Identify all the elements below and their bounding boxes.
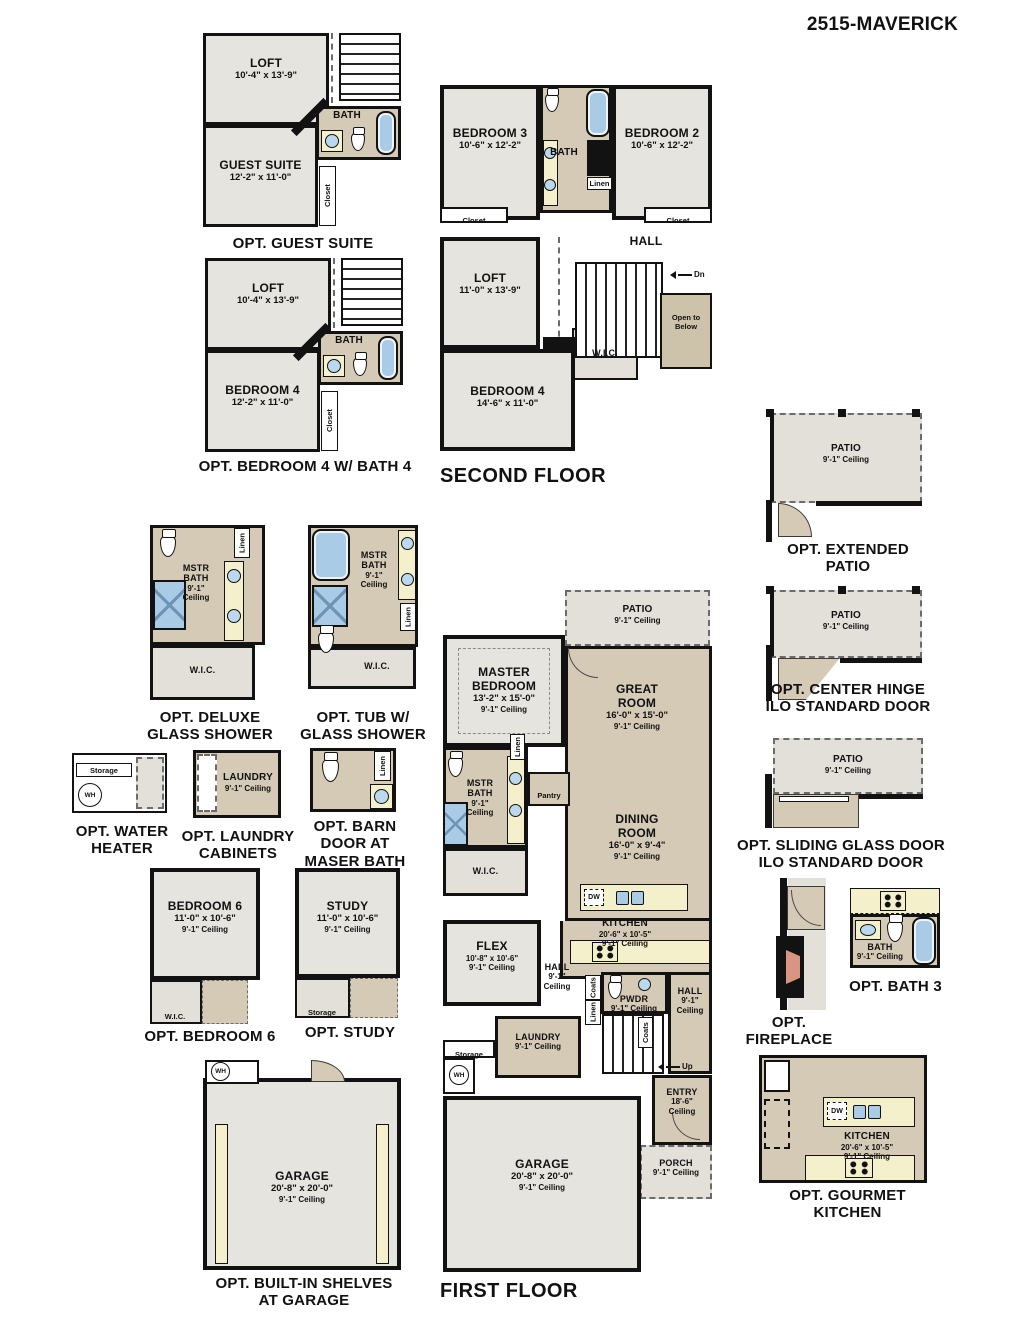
- plan-opt-fireplace: OPT.FIREPLACE: [748, 878, 830, 1048]
- laundry-label: LAUNDRY9'-1" Ceiling: [495, 1032, 581, 1052]
- hall-label: HALL: [615, 235, 677, 249]
- linen-label: Linen: [400, 603, 416, 631]
- open-to-below: [660, 293, 712, 369]
- bedroom-3-label: BEDROOM 310'-6" x 12'-2": [440, 127, 540, 152]
- stairs: [341, 258, 403, 326]
- stairs: [339, 33, 401, 101]
- storage-label: Storage: [76, 763, 132, 777]
- sink-icon: [374, 789, 389, 804]
- hall-area: [202, 980, 248, 1024]
- plan-opt-deluxe-glass-shower: Linen MSTR BATH9'-1"Ceiling W.I.C. OPT. …: [150, 525, 268, 745]
- closet-label: Closet: [321, 391, 338, 451]
- room-bedroom-3: [440, 85, 540, 220]
- room-bedroom-2: [612, 85, 712, 220]
- closet-left-label: Closet: [440, 210, 508, 228]
- bathtub-icon: [586, 89, 610, 137]
- kitchen-label: KITCHEN20'-6" x 10'-5"9'-1" Ceiling: [555, 918, 695, 948]
- refrigerator: [764, 1060, 790, 1092]
- linen-label: Linen: [585, 1000, 601, 1025]
- great-room-label: GREAT ROOM16'-0" x 15'-0"9'-1" Ceiling: [597, 683, 677, 731]
- wic-label: W.I.C.: [572, 348, 638, 358]
- dishwasher: DW: [827, 1102, 847, 1120]
- closet-dashed: [136, 757, 164, 809]
- railing-dashed-line: [331, 33, 333, 103]
- loft-label: LOFT10'-4" x 13'-9": [209, 282, 327, 307]
- linen-label: Linen: [234, 528, 250, 558]
- dining-room-label: DINING ROOM16'-0" x 9'-4"9'-1" Ceiling: [597, 813, 677, 861]
- plan-caption: OPT.FIREPLACE: [728, 1014, 850, 1049]
- hall1-label: HALL9'-1"Ceiling: [528, 962, 586, 991]
- porch-label: PORCH9'-1" Ceiling: [640, 1158, 712, 1178]
- bathtub-icon: [378, 336, 398, 380]
- wall: [859, 794, 923, 799]
- post: [766, 586, 774, 594]
- stair-direction: Dn: [666, 270, 710, 279]
- sink-icon: [401, 573, 414, 586]
- plan-caption: OPT. BEDROOM 6: [135, 1028, 285, 1045]
- plan-caption: OPT. GUEST SUITE: [193, 235, 413, 252]
- bath-label: BATH: [540, 147, 588, 159]
- sink-icon: [860, 924, 876, 936]
- dishwasher: DW: [584, 889, 604, 906]
- patio-label: PATIO9'-1" Ceiling: [565, 604, 710, 625]
- plan-opt-study: STUDY11'-0" x 10'-6"9'-1" Ceiling Storag…: [295, 868, 405, 1046]
- patio-label: PATIO9'-1" Ceiling: [770, 443, 922, 464]
- mstr-bath-label: MSTR BATH9'-1"Ceiling: [454, 778, 506, 817]
- bathtub-icon: [376, 111, 396, 155]
- post: [912, 409, 920, 417]
- storage-label: Storage: [443, 1044, 495, 1062]
- sink-icon: [509, 804, 522, 817]
- plan-opt-guest-suite: BATH LOFT10'-4" x 13'-9" GUEST SUITE12'-…: [203, 33, 403, 263]
- bathtub-icon: [312, 529, 350, 581]
- wic-label: W.I.C.: [150, 665, 255, 675]
- mstr-bath-label: MSTR BATH9'-1"Ceiling: [168, 563, 224, 602]
- wic-label: W.I.C.: [152, 1006, 198, 1024]
- laundry-label: LAUNDRY9'-1" Ceiling: [217, 772, 279, 793]
- plan-caption: OPT. EXTENDEDPATIO: [762, 541, 934, 576]
- open-to-below-label: Open to Below: [664, 313, 708, 331]
- post: [838, 409, 846, 417]
- arrow-left-icon: [666, 271, 676, 279]
- vanity-counter: [507, 756, 525, 844]
- bath-label: BATH9'-1" Ceiling: [852, 942, 908, 962]
- double-sink-icon: [616, 889, 644, 906]
- mstr-bath-label: MSTR BATH9'-1"Ceiling: [350, 550, 398, 589]
- railing-dashed-line: [558, 237, 560, 347]
- linen-label: Linen: [374, 751, 391, 781]
- study-label: STUDY11'-0" x 10'-6"9'-1" Ceiling: [295, 900, 400, 934]
- plan-caption: OPT. WATERHEATER: [62, 823, 182, 858]
- plan-caption: OPT. STUDY: [295, 1024, 405, 1041]
- post: [766, 409, 774, 417]
- coats-label: Coats: [585, 975, 601, 1000]
- plan-opt-center-hinge: PATIO9'-1" Ceiling OPT. CENTER HINGEILO …: [762, 585, 934, 725]
- coats-label: Coats: [638, 1017, 653, 1048]
- pantry-cabinets: [764, 1099, 790, 1149]
- sink-icon: [227, 569, 241, 583]
- water-heater-icon: WH: [211, 1062, 230, 1081]
- plan-caption: OPT. BATH 3: [833, 978, 958, 995]
- pantry-label: Pantry: [528, 785, 570, 803]
- post: [912, 586, 920, 594]
- plan-caption: OPT. LAUNDRYCABINETS: [173, 828, 303, 863]
- wall-chase: [543, 337, 575, 351]
- hall2-label: HALL9'-1"Ceiling: [668, 986, 712, 1015]
- bedroom-6-label: BEDROOM 611'-0" x 10'-6"9'-1" Ceiling: [150, 900, 260, 934]
- patio-label: PATIO9'-1" Ceiling: [773, 754, 923, 775]
- plan-first-floor: PATIO9'-1" Ceiling MASTER BEDROOM13'-2" …: [440, 588, 712, 1312]
- bath-label: BATH: [316, 110, 378, 122]
- plan-caption: OPT. SLIDING GLASS DOORILO STANDARD DOOR: [737, 837, 945, 872]
- garage-label: GARAGE20'-8" x 20'-0"9'-1" Ceiling: [203, 1170, 401, 1204]
- post: [838, 586, 846, 594]
- water-heater-icon: WH: [449, 1065, 469, 1085]
- plan-caption: SECOND FLOOR: [440, 465, 680, 488]
- plan-caption: OPT. BEDROOM 4 W/ BATH 4: [180, 458, 430, 475]
- plan-caption: OPT. BARNDOOR ATMASER BATH: [285, 818, 425, 870]
- pwdr-label: PWDR9'-1" Ceiling: [603, 994, 665, 1014]
- plan-opt-sliding-glass-door: PATIO9'-1" Ceiling OPT. SLIDING GLASS DO…: [745, 738, 937, 878]
- page-title: 2515-MAVERICK: [758, 14, 958, 36]
- plan-second-floor: Linen BATH BEDROOM 310'-6" x 12'-2" BEDR…: [440, 85, 712, 495]
- wall-chase: [587, 140, 612, 176]
- stove-icon: [845, 1158, 873, 1178]
- sink-icon: [544, 179, 556, 191]
- plan-opt-gourmet-kitchen: DW KITCHEN20'-6" x 10'-5"9'-1" Ceiling O…: [755, 1055, 940, 1220]
- sink-icon: [401, 537, 414, 550]
- kitchen-label: KITCHEN20'-6" x 10'-5"9'-1" Ceiling: [813, 1131, 921, 1161]
- garage-label: GARAGE20'-8" x 20'-0"9'-1" Ceiling: [443, 1158, 641, 1192]
- floorplan-sheet: 2515-MAVERICK BATH LOFT10'-4" x 13'-9" G…: [0, 0, 1024, 1325]
- plan-caption: OPT. CENTER HINGEILO STANDARD DOOR: [753, 681, 943, 716]
- wall: [816, 501, 922, 506]
- door-swing: [311, 1060, 345, 1082]
- hall-area: [350, 978, 398, 1018]
- plan-caption: OPT. GOURMETKITCHEN: [755, 1187, 940, 1222]
- arrow-left-icon: [654, 1063, 664, 1071]
- plan-opt-water-heater: Storage WH OPT. WATERHEATER: [72, 753, 172, 863]
- door-swing: [778, 503, 812, 537]
- plan-caption: OPT. DELUXEGLASS SHOWER: [130, 709, 290, 744]
- loft-label: LOFT10'-4" x 13'-9": [207, 57, 325, 82]
- railing-dashed-line: [333, 258, 335, 328]
- storage-label: Storage: [297, 1002, 347, 1020]
- linen-label: Linen: [510, 734, 525, 760]
- stairs: [575, 262, 663, 358]
- stove-icon: [880, 891, 906, 911]
- plan-opt-bedroom4-bath4: BATH LOFT10'-4" x 13'-9" BEDROOM 412'-2"…: [205, 258, 405, 488]
- plan-caption: OPT. TUB W/GLASS SHOWER: [283, 709, 443, 744]
- wic-label: W.I.C.: [338, 661, 416, 671]
- double-sink-icon: [853, 1103, 881, 1120]
- plan-opt-tub-glass-shower: MSTR BATH9'-1"Ceiling Linen W.I.C. OPT. …: [308, 525, 420, 745]
- plan-opt-bedroom6: BEDROOM 611'-0" x 10'-6"9'-1" Ceiling W.…: [150, 868, 270, 1048]
- wall: [765, 774, 772, 828]
- bedroom-4-label: BEDROOM 412'-2" x 11'-0": [205, 384, 320, 409]
- plan-opt-builtin-shelves: WH GARAGE20'-8" x 20'-0"9'-1" Ceiling OP…: [203, 1058, 405, 1313]
- plan-caption: OPT. BUILT-IN SHELVESAT GARAGE: [203, 1275, 405, 1310]
- plan-opt-barn-door: Linen OPT. BARNDOOR ATMASER BATH: [310, 748, 400, 880]
- guest-suite-label: GUEST SUITE12'-2" x 11'-0": [203, 159, 318, 184]
- loft-label: LOFT11'-0" x 13'-9": [440, 272, 540, 297]
- bathtub-icon: [912, 917, 936, 965]
- bedroom-4-label: BEDROOM 414'-6" x 11'-0": [440, 385, 575, 410]
- closet-right-label: Closet: [644, 210, 712, 228]
- plan-opt-laundry-cabinets: LAUNDRY9'-1" Ceiling OPT. LAUNDRYCABINET…: [193, 750, 285, 882]
- shower-icon: [312, 585, 348, 627]
- sink-icon: [227, 609, 241, 623]
- bath-label: BATH: [318, 335, 380, 347]
- closet-label: Closet: [319, 166, 336, 226]
- water-heater-icon: WH: [78, 783, 102, 807]
- wic-label: W.I.C.: [443, 866, 528, 876]
- plan-opt-bath3: BATH9'-1" Ceiling OPT. BATH 3: [848, 888, 943, 1003]
- flex-label: FLEX10'-8" x 10'-6"9'-1" Ceiling: [443, 940, 541, 972]
- entry-label: ENTRY18'-6"Ceiling: [652, 1087, 712, 1116]
- plan-opt-extended-patio: PATIO9'-1" Ceiling OPT. EXTENDEDPATIO: [762, 405, 934, 580]
- plan-caption: FIRST FLOOR: [440, 1280, 680, 1303]
- master-bedroom-label: MASTER BEDROOM13'-2" x 15'-0"9'-1" Ceili…: [443, 666, 565, 714]
- sink-icon: [327, 359, 341, 373]
- patio-label: PATIO9'-1" Ceiling: [770, 610, 922, 631]
- linen-label: Linen: [587, 177, 612, 190]
- cabinets: [197, 754, 217, 812]
- wall: [840, 658, 922, 663]
- sink-icon: [509, 772, 522, 785]
- bedroom-2-label: BEDROOM 210'-6" x 12'-2": [612, 127, 712, 152]
- wall: [766, 500, 772, 542]
- sink-icon: [325, 134, 339, 148]
- sliding-door-panel: [779, 796, 849, 802]
- sink-icon: [638, 978, 651, 991]
- sheet-title-wrap: 2515-MAVERICK: [758, 14, 958, 40]
- stair-direction: Up: [654, 1062, 704, 1071]
